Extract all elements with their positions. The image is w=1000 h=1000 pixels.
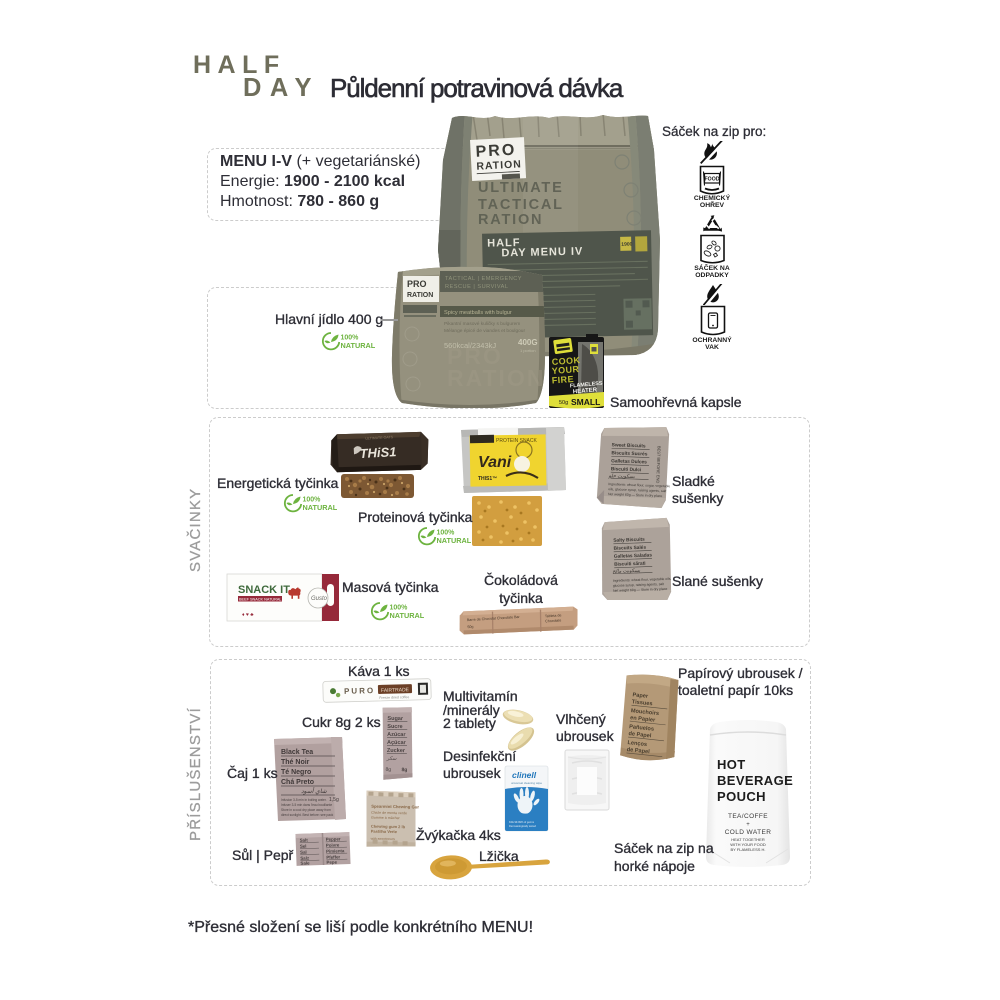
svg-text:Freeze dried coffee: Freeze dried coffee xyxy=(379,695,409,700)
svg-text:SMALL: SMALL xyxy=(571,397,600,407)
svg-text:THiS1: THiS1 xyxy=(359,444,397,461)
svg-text:+: + xyxy=(746,822,750,828)
svg-text:RATION: RATION xyxy=(478,212,543,228)
svg-text:PRO: PRO xyxy=(475,142,517,161)
svg-text:50g: 50g xyxy=(467,625,473,629)
svg-text:PRO: PRO xyxy=(407,279,427,289)
svg-text:Chá Preto: Chá Preto xyxy=(281,779,314,786)
svg-text:NATURAL: NATURAL xyxy=(303,503,338,512)
svg-text:Pastilha Verte: Pastilha Verte xyxy=(371,829,398,834)
svg-text:with sweeteners: with sweeteners xyxy=(371,837,396,841)
svg-text:HOT: HOT xyxy=(717,757,746,772)
svg-text:بسكويت مالح: بسكويت مالح xyxy=(612,568,641,575)
svg-text:Pimienta: Pimienta xyxy=(326,848,345,854)
svg-text:Pepper: Pepper xyxy=(326,836,341,842)
svg-text:Pepe: Pepe xyxy=(326,860,337,865)
svg-text:PROTEIN SNACK: PROTEIN SNACK xyxy=(496,438,538,444)
svg-text:50g: 50g xyxy=(559,400,568,406)
svg-text:Store in a cool dry place away: Store in a cool dry place away from xyxy=(281,808,331,812)
svg-text:NATURAL: NATURAL xyxy=(437,536,472,545)
svg-text:♦ ♥ ♣: ♦ ♥ ♣ xyxy=(242,612,254,618)
svg-text:Gusto: Gusto xyxy=(311,596,328,602)
svg-text:TEA/COFFE: TEA/COFFE xyxy=(728,813,768,820)
svg-text:Vani: Vani xyxy=(478,454,512,471)
svg-text:سكر: سكر xyxy=(386,756,398,762)
svg-text:8g: 8g xyxy=(385,767,391,773)
svg-text:شاي أسود: شاي أسود xyxy=(301,787,328,795)
svg-text:Infuser 3-5 min dans l'eau bou: Infuser 3-5 min dans l'eau bouillante xyxy=(281,803,332,807)
svg-text:Infusion 3-5 min in boiling wa: Infusion 3-5 min in boiling water. xyxy=(281,798,327,802)
svg-text:Sale: Sale xyxy=(300,860,310,865)
svg-text:Mélange épicé de viandes et bo: Mélange épicé de viandes et boulgour xyxy=(444,328,525,334)
svg-text:Sal: Sal xyxy=(300,850,307,855)
svg-text:Black Tea: Black Tea xyxy=(281,749,313,756)
svg-text:بسكويت حلو: بسكويت حلو xyxy=(608,473,636,480)
svg-text:Thé Noir: Thé Noir xyxy=(281,759,310,766)
svg-text:BEVERAGE: BEVERAGE xyxy=(717,773,793,788)
svg-text:COLD WATER: COLD WATER xyxy=(725,829,772,836)
svg-text:FAIRTRADE: FAIRTRADE xyxy=(381,687,410,694)
svg-text:BEEF SNACK NATURAL: BEEF SNACK NATURAL xyxy=(239,598,282,602)
svg-text:Sel: Sel xyxy=(300,844,307,849)
svg-text:1 portion: 1 portion xyxy=(520,348,536,353)
svg-text:NATURAL: NATURAL xyxy=(390,611,425,620)
svg-text:RESCUE | SURVIVAL: RESCUE | SURVIVAL xyxy=(445,284,509,290)
svg-text:PURO: PURO xyxy=(344,686,375,696)
svg-text:Pikantní masové kuličky s bulg: Pikantní masové kuličky s bulgurem xyxy=(444,321,520,327)
svg-text:RATION: RATION xyxy=(476,158,522,172)
svg-text:DAY: DAY xyxy=(243,74,320,102)
svg-text:Spicy meatballs with bulgur: Spicy meatballs with bulgur xyxy=(444,310,512,316)
svg-text:Dermatologically tested: Dermatologically tested xyxy=(509,824,537,828)
svg-text:NATURAL: NATURAL xyxy=(341,341,376,350)
svg-text:8g: 8g xyxy=(401,767,407,773)
svg-text:SNACK IT: SNACK IT xyxy=(238,584,290,596)
svg-text:Kills 99.99% of germs: Kills 99.99% of germs xyxy=(509,820,535,824)
svg-text:RATION: RATION xyxy=(407,292,433,299)
svg-text:DAY MENU IV: DAY MENU IV xyxy=(501,246,583,260)
svg-text:Spearmint Chewing Gum: Spearmint Chewing Gum xyxy=(371,804,419,810)
svg-text:THIS1™: THIS1™ xyxy=(478,476,497,482)
svg-text:BY FLAMELESS H.: BY FLAMELESS H. xyxy=(730,847,765,852)
svg-text:Chicle de menta verde: Chicle de menta verde xyxy=(371,811,407,816)
svg-text:1900: 1900 xyxy=(621,242,632,248)
svg-text:RATION: RATION xyxy=(447,365,545,391)
svg-text:TACTICAL | EMERGENCY: TACTICAL | EMERGENCY xyxy=(445,276,522,282)
svg-text:FOOD: FOOD xyxy=(705,177,720,183)
svg-text:TACTICAL: TACTICAL xyxy=(478,197,564,213)
svg-text:direct sunlight. Best before:: direct sunlight. Best before: see pack xyxy=(281,813,334,817)
svg-text:400G: 400G xyxy=(518,338,538,347)
svg-text:ULTIMATE: ULTIMATE xyxy=(478,180,564,196)
svg-text:Té Negro: Té Negro xyxy=(281,769,311,776)
svg-text:POUCH: POUCH xyxy=(717,789,766,804)
svg-text:Salt: Salt xyxy=(300,838,309,843)
svg-text:Poivre: Poivre xyxy=(326,842,340,847)
svg-text:Gomme à mâcher: Gomme à mâcher xyxy=(371,816,401,821)
